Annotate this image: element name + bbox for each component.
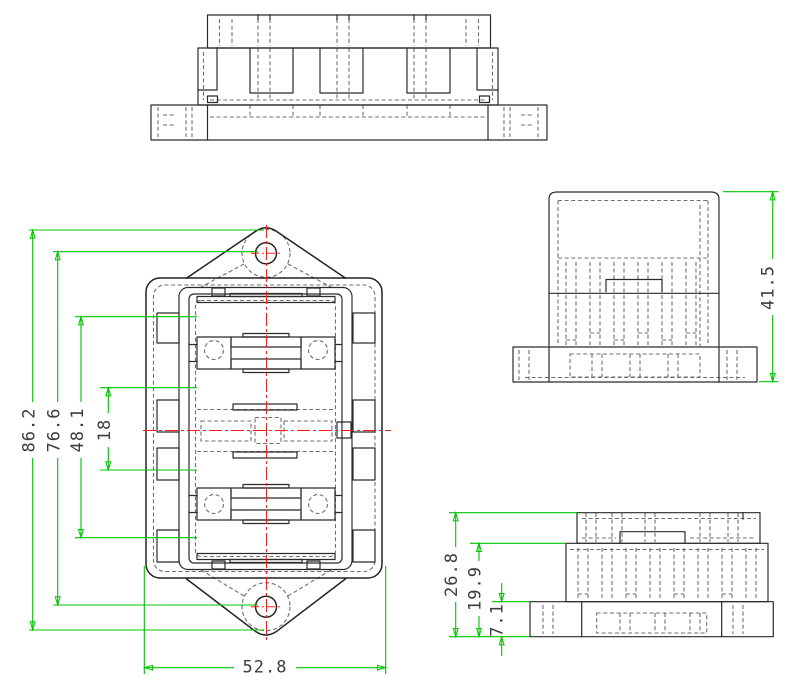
dimension-label-overall-height: 86.2 bbox=[20, 408, 40, 453]
top-view-hidden-lines bbox=[158, 19, 538, 137]
dimension-label-overall-width: 52.8 bbox=[243, 658, 288, 678]
dimension-label-side-height: 41.5 bbox=[759, 265, 779, 310]
side-view-hidden-lines bbox=[519, 201, 745, 381]
dimension-label-base-overall-height: 26.8 bbox=[442, 552, 462, 597]
side-view-outline bbox=[513, 192, 757, 382]
right-side-view bbox=[513, 192, 757, 382]
dimension-label-base-body-height: 19.9 bbox=[466, 566, 486, 611]
front-view bbox=[143, 225, 391, 642]
side-view-dimension: 41.5 bbox=[723, 192, 779, 382]
dimension-label-base-flange-height: 7.1 bbox=[488, 603, 508, 637]
technical-drawing-page: 86.2 76.6 48.1 18 52.8 41.5 26.8 19.9 7.… bbox=[0, 0, 800, 700]
front-view-centerlines bbox=[143, 225, 391, 642]
top-elevation-view bbox=[151, 15, 547, 140]
body-outer-outline bbox=[146, 278, 382, 578]
fuse-slot-upper bbox=[189, 334, 342, 373]
fuse-slot-lower bbox=[189, 485, 342, 524]
dimension-label-hole-spacing: 76.6 bbox=[45, 408, 65, 453]
right-side-base-view bbox=[530, 513, 773, 637]
cover-outline bbox=[549, 192, 719, 293]
base-view-outline bbox=[530, 513, 773, 637]
base-view-dimensions: 26.8 19.9 7.1 bbox=[442, 513, 577, 656]
dimension-label-center-spacing: 18 bbox=[95, 419, 115, 441]
technical-drawing-canvas: 86.2 76.6 48.1 18 52.8 41.5 26.8 19.9 7.… bbox=[0, 0, 800, 700]
front-width-dimension: 52.8 bbox=[144, 566, 385, 678]
dimension-label-cavity-height: 48.1 bbox=[68, 408, 88, 453]
